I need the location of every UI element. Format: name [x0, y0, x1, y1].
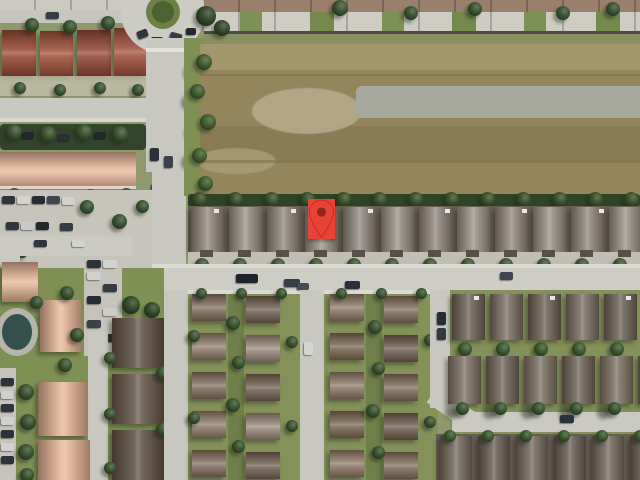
row-house	[609, 207, 640, 253]
tree	[70, 328, 84, 342]
dark-brown-house	[112, 318, 164, 368]
ac-unit	[214, 209, 219, 213]
tree	[264, 192, 279, 207]
track-line	[196, 74, 640, 76]
grid-house	[246, 374, 280, 401]
tree	[144, 302, 160, 318]
tree	[236, 288, 247, 299]
pool	[2, 314, 32, 350]
tree	[198, 176, 213, 191]
tree	[468, 2, 482, 16]
tree	[376, 288, 387, 299]
tree	[408, 192, 423, 207]
car	[62, 197, 75, 205]
tree	[372, 362, 385, 375]
row-house	[267, 207, 300, 253]
car	[437, 328, 446, 340]
row-house	[524, 356, 557, 404]
tree	[570, 402, 583, 415]
tree	[610, 342, 624, 356]
row-house	[452, 294, 485, 340]
grid-house	[192, 450, 226, 477]
grid-house	[384, 374, 418, 401]
grid-house	[330, 372, 364, 399]
car	[87, 296, 101, 304]
row-house	[478, 436, 510, 480]
tree	[76, 124, 92, 140]
tree	[214, 20, 230, 36]
car	[22, 132, 34, 139]
tree	[332, 0, 348, 16]
condo-salmon	[38, 382, 88, 436]
car	[560, 415, 574, 423]
garage-shadow	[352, 250, 365, 257]
tree	[6, 124, 22, 140]
car	[94, 132, 106, 139]
tree	[60, 286, 74, 300]
tree	[336, 192, 351, 207]
garage-shadow	[314, 250, 327, 257]
car	[6, 222, 19, 230]
tree	[404, 6, 418, 20]
car	[87, 260, 101, 268]
tree	[196, 288, 207, 299]
car	[236, 274, 258, 283]
row-house	[495, 207, 528, 253]
clubhouse-building	[0, 152, 136, 190]
grid-house	[246, 413, 280, 440]
grid-house	[192, 372, 226, 399]
row-house	[562, 356, 595, 404]
tree	[30, 296, 43, 309]
row-house	[600, 356, 633, 404]
car	[103, 308, 117, 316]
tree	[558, 430, 570, 442]
grid-house	[330, 411, 364, 438]
garage-shadow	[276, 250, 289, 257]
tree	[372, 446, 385, 459]
car	[2, 196, 15, 204]
grid-house	[330, 294, 364, 321]
row-house	[486, 356, 519, 404]
car	[32, 196, 45, 204]
street	[452, 412, 640, 432]
dark-brown-house	[112, 374, 164, 424]
tree	[534, 342, 548, 356]
tree	[232, 440, 245, 453]
condo-salmon	[38, 440, 90, 480]
tree	[132, 84, 144, 96]
tree	[196, 6, 216, 26]
tree	[456, 402, 469, 415]
tree	[63, 20, 77, 34]
car	[500, 272, 513, 280]
car	[60, 223, 73, 231]
tree	[286, 420, 298, 432]
ac-unit	[626, 296, 631, 300]
garage-shadow	[618, 250, 631, 257]
tree	[58, 358, 72, 372]
car	[1, 391, 14, 399]
tree	[188, 330, 200, 342]
ac-unit	[599, 209, 604, 213]
car	[297, 283, 309, 290]
street	[300, 290, 324, 480]
row-house	[516, 436, 548, 480]
condo-salmon	[40, 300, 82, 352]
townhome-strip	[0, 0, 132, 10]
tree	[624, 192, 639, 207]
tree	[556, 6, 570, 20]
tree	[136, 200, 149, 213]
dirt-band-light	[196, 44, 640, 70]
road	[152, 172, 186, 272]
garage-shadow	[466, 250, 479, 257]
tree	[112, 126, 128, 142]
grid-house	[384, 296, 418, 323]
tree	[20, 468, 34, 480]
tree	[190, 84, 205, 99]
townhome-yards	[204, 12, 640, 32]
dark-brown-house	[112, 430, 164, 480]
ac-unit	[291, 209, 296, 213]
dropped-pin[interactable]	[308, 199, 335, 239]
tree	[366, 404, 380, 418]
row-house	[343, 207, 376, 253]
tree	[192, 148, 207, 163]
tree	[25, 18, 39, 32]
row-house	[528, 294, 561, 340]
concrete-pad	[356, 86, 640, 118]
tree	[20, 414, 36, 430]
grid-house	[384, 335, 418, 362]
tree	[80, 200, 94, 214]
tree	[122, 296, 140, 314]
car	[72, 240, 85, 247]
car	[1, 417, 14, 425]
car	[164, 156, 173, 168]
tree	[520, 430, 532, 442]
car	[1, 430, 14, 438]
car	[87, 320, 101, 328]
tree	[228, 192, 243, 207]
roundabout-island-center	[152, 1, 174, 23]
ac-unit	[474, 296, 479, 300]
garage-shadow	[390, 250, 403, 257]
row-house	[448, 356, 481, 404]
tree	[18, 384, 34, 400]
tree	[226, 316, 240, 330]
car	[150, 148, 159, 161]
tree	[54, 84, 66, 96]
row-house	[592, 436, 624, 480]
car	[87, 272, 101, 280]
grid-house	[246, 335, 280, 362]
sidewalk	[0, 118, 148, 122]
grid-house	[330, 450, 364, 477]
tree	[532, 402, 545, 415]
garage-shadow	[580, 250, 593, 257]
tree	[634, 430, 640, 442]
tree	[588, 192, 603, 207]
road	[0, 98, 150, 118]
car	[47, 196, 60, 204]
tree	[458, 342, 472, 356]
garage-shadow	[504, 250, 517, 257]
tree	[18, 444, 34, 460]
red-tile-house	[40, 31, 73, 76]
car	[36, 222, 49, 230]
tree	[112, 214, 127, 229]
car	[1, 456, 14, 464]
yard-lawn	[310, 12, 334, 32]
row-house	[490, 294, 523, 340]
car	[21, 222, 34, 230]
tree	[572, 342, 586, 356]
row-house	[630, 436, 640, 480]
red-tile-house	[77, 30, 111, 76]
row-house	[229, 207, 262, 253]
yard-lawn	[524, 12, 546, 32]
car	[46, 12, 59, 19]
car	[1, 404, 14, 412]
tree	[444, 430, 456, 442]
tree	[94, 82, 106, 94]
tree	[608, 402, 621, 415]
tree	[482, 430, 494, 442]
car	[304, 342, 313, 355]
row-house	[571, 207, 604, 253]
tree	[104, 462, 116, 474]
tree	[200, 114, 216, 130]
car	[437, 312, 446, 325]
yard-lawn	[240, 12, 262, 32]
car	[1, 443, 14, 451]
tree	[196, 54, 212, 70]
tree	[516, 192, 531, 207]
grid-house	[246, 452, 280, 479]
yard-lawn	[382, 12, 404, 32]
row-house	[381, 207, 414, 253]
car	[17, 196, 30, 204]
ac-unit	[522, 209, 527, 213]
grid-house	[384, 413, 418, 440]
tree	[372, 192, 387, 207]
tree	[101, 16, 115, 30]
garage-shadow	[542, 250, 555, 257]
car	[103, 284, 117, 292]
garage-shadow	[428, 250, 441, 257]
row-house	[533, 207, 566, 253]
tree	[192, 192, 207, 207]
track-line	[196, 160, 640, 163]
red-tile-house	[2, 30, 36, 76]
dirt-pale-patch	[252, 88, 362, 134]
ac-unit	[368, 209, 373, 213]
car	[345, 281, 360, 289]
tree	[416, 288, 427, 299]
tree	[552, 192, 567, 207]
car	[58, 134, 70, 141]
row-house	[566, 294, 599, 340]
tree	[596, 430, 608, 442]
garage-shadow	[238, 250, 251, 257]
car	[103, 260, 117, 268]
crosswalk	[146, 48, 184, 52]
tree	[480, 192, 495, 207]
row-house	[604, 294, 637, 340]
row-house	[440, 436, 472, 480]
map-canvas[interactable]	[0, 0, 640, 480]
grid-house	[330, 333, 364, 360]
tree	[494, 402, 507, 415]
tree	[232, 356, 245, 369]
tree	[276, 288, 287, 299]
tree	[40, 126, 56, 142]
tree	[444, 192, 459, 207]
building-trim	[0, 186, 136, 189]
row-house	[191, 207, 224, 253]
ac-unit	[445, 209, 450, 213]
car	[34, 240, 47, 247]
row-house	[419, 207, 452, 253]
garage-shadow	[200, 250, 213, 257]
street	[164, 290, 188, 480]
grid-house	[384, 452, 418, 479]
grid-house	[246, 296, 280, 323]
tree	[226, 398, 240, 412]
row-house	[457, 207, 490, 253]
grid-house	[192, 294, 226, 321]
tree	[14, 82, 26, 94]
main-street	[152, 268, 640, 290]
tree	[496, 342, 510, 356]
tree	[104, 352, 116, 364]
car	[1, 378, 14, 386]
tree	[286, 336, 298, 348]
tree	[606, 2, 620, 16]
tree	[424, 416, 436, 428]
tree	[104, 408, 116, 420]
townhome-roofs	[204, 0, 640, 12]
ac-unit	[550, 296, 555, 300]
row-house	[554, 436, 586, 480]
tree	[188, 412, 200, 424]
tree	[336, 288, 347, 299]
tree	[368, 320, 382, 334]
car	[186, 28, 196, 35]
